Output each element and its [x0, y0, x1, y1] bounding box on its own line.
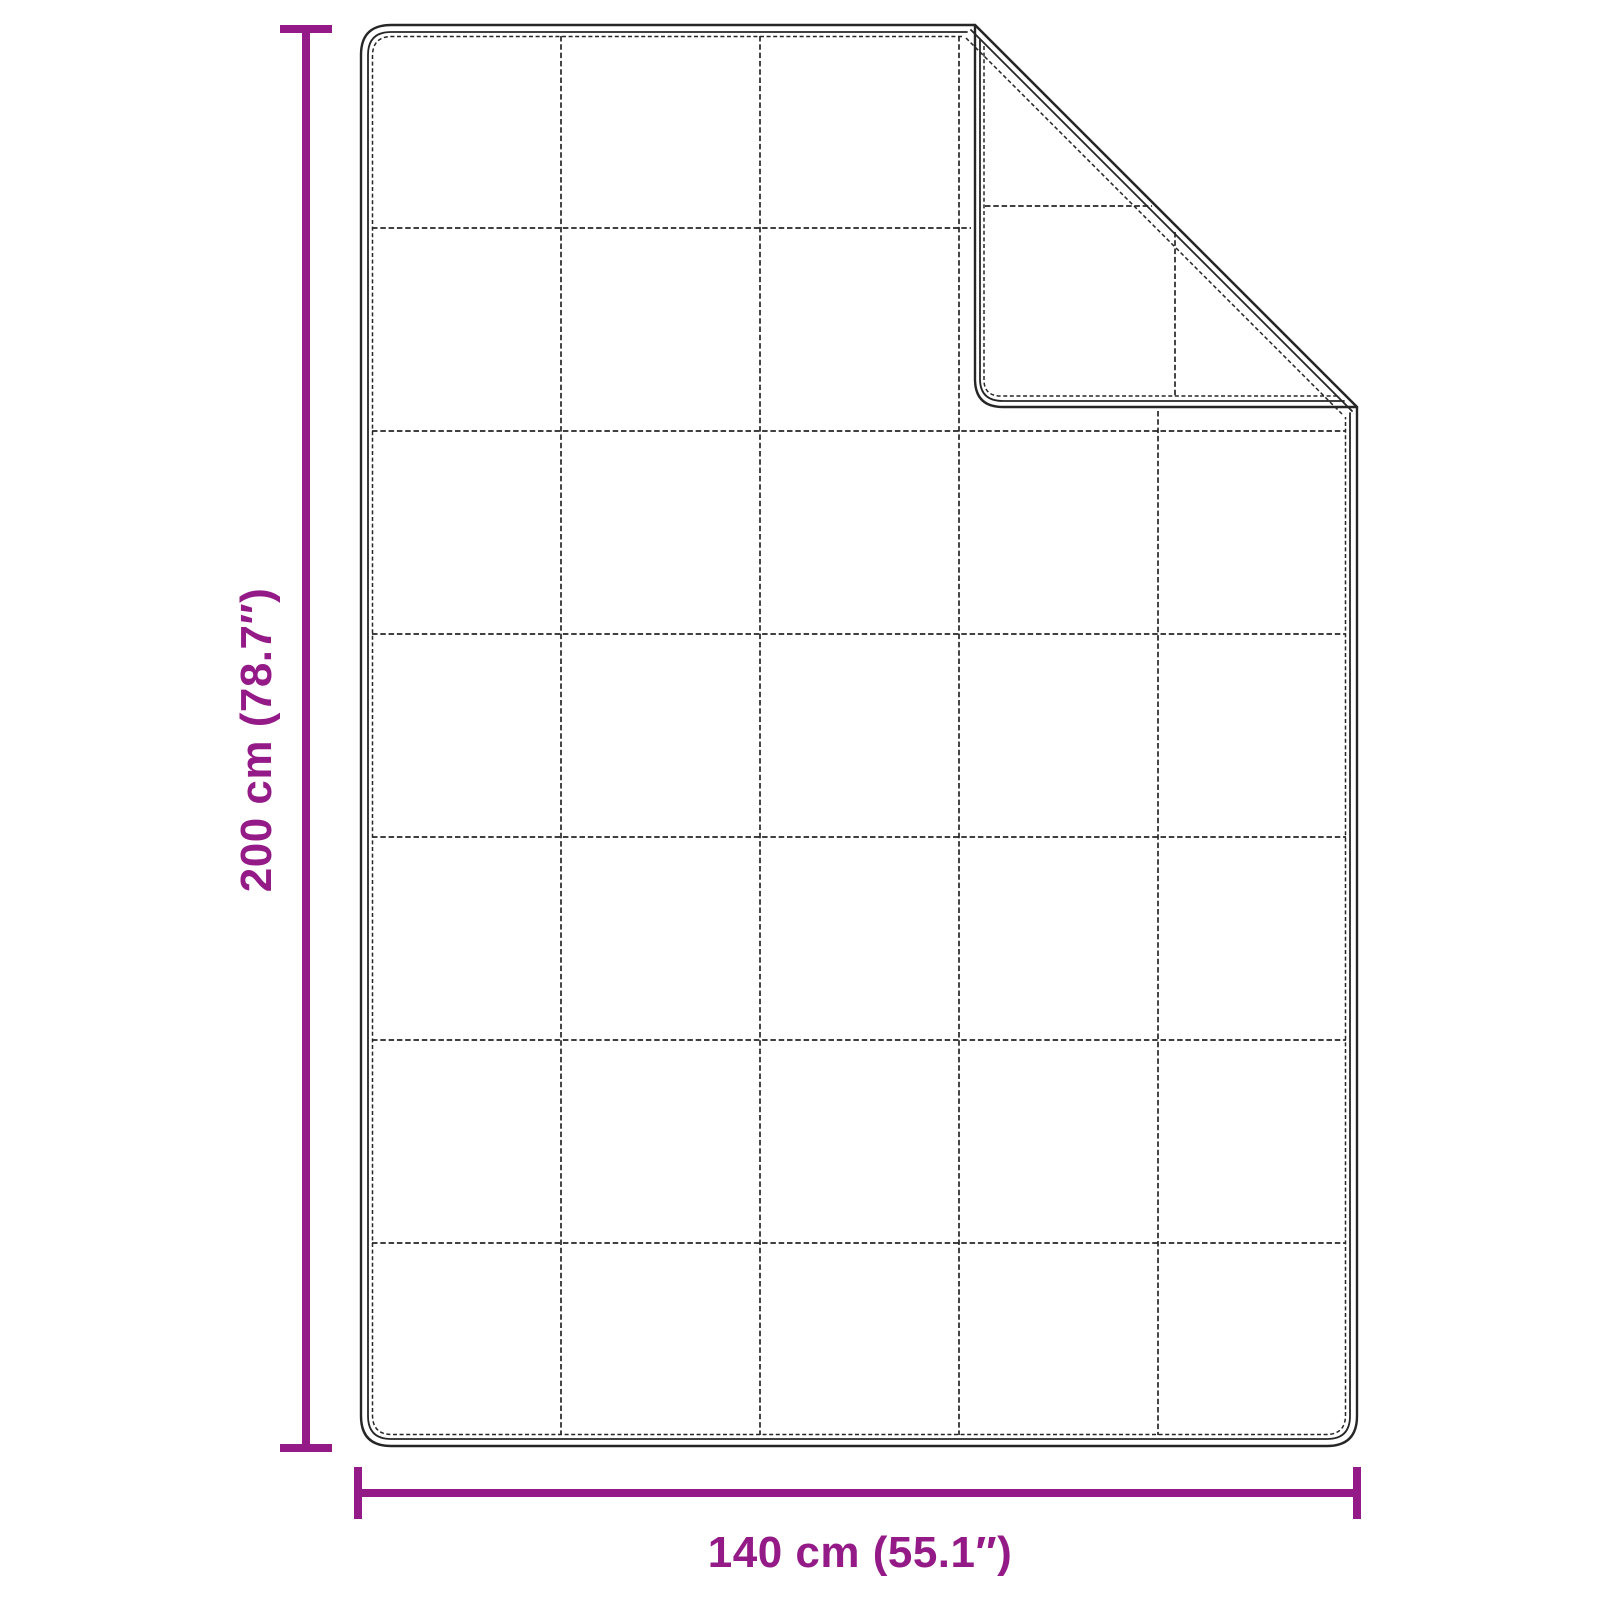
height-dimension-marker [280, 29, 332, 1448]
blanket [361, 25, 1357, 1446]
product-dimension-diagram: 200 cm (78.7″) 140 cm (55.1″) [0, 0, 1600, 1600]
fold-flap-outline [975, 25, 1357, 407]
folded-corner-flap [966, 25, 1357, 414]
blanket-outline [361, 25, 1357, 1446]
width-dimension-marker [358, 1467, 1357, 1519]
height-label: 200 cm (78.7″) [232, 588, 282, 892]
width-label: 140 cm (55.1″) [708, 1528, 1012, 1578]
